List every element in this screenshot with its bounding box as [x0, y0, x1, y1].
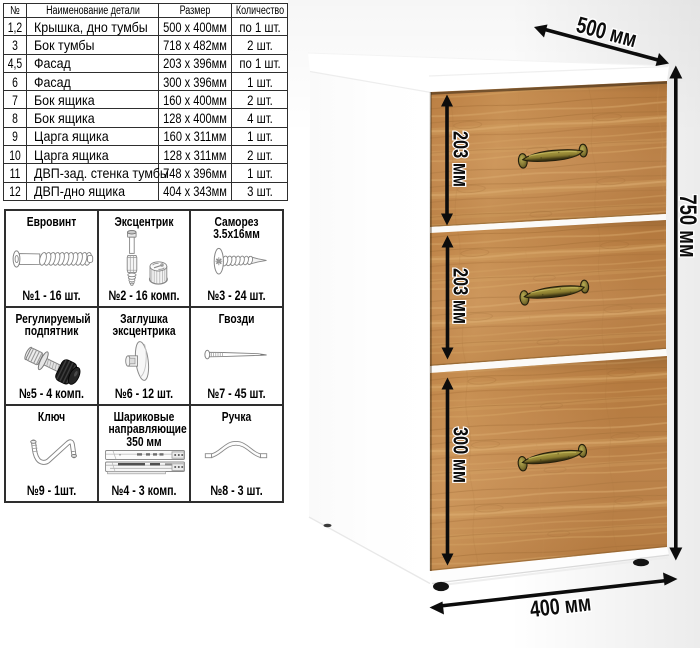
svg-text:203 мм: 203 мм — [449, 268, 472, 324]
svg-text:203 мм: 203 мм — [449, 131, 472, 187]
svg-text:300 мм: 300 мм — [449, 427, 472, 483]
svg-text:750 мм: 750 мм — [675, 194, 700, 257]
